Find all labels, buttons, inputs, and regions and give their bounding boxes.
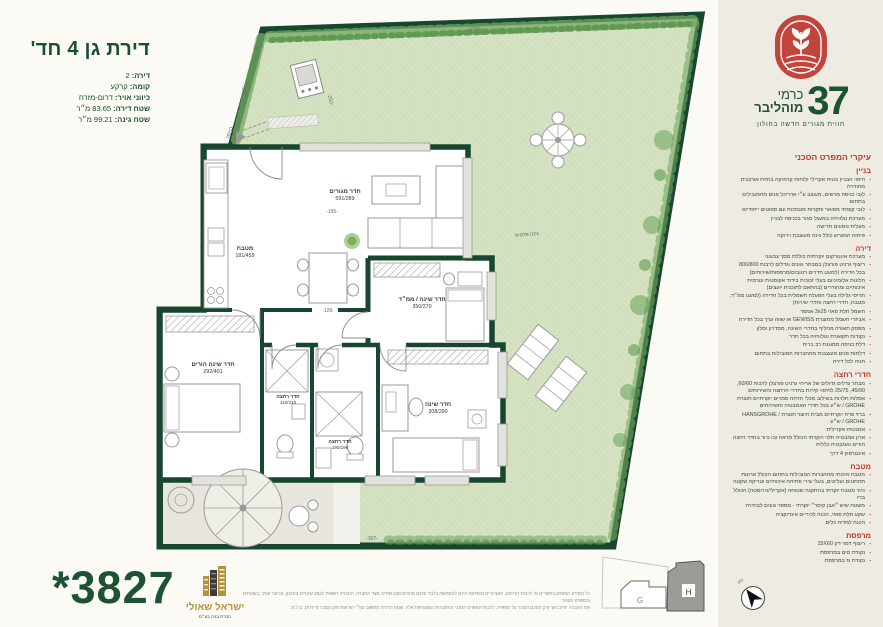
plant-icon: [344, 233, 360, 249]
svg-text:חדר שינה: חדר שינה: [425, 402, 451, 408]
spec-item: ארון אמבטיה תלוי ויוקרתי הכולל מראה ובו …: [729, 435, 871, 449]
deck-table: [289, 506, 309, 526]
svg-text:-307-: -307-: [366, 536, 378, 542]
svg-text:חדר רחצה: חדר רחצה: [328, 439, 352, 445]
spec-item: פיתוח המגרש כולל גינה מעוצבת וירוקה: [729, 233, 871, 240]
entry-walkway: [268, 114, 319, 128]
spec-item: דלתות פנים מעוצבות מהחברות המובילות בתחו…: [729, 351, 871, 358]
svg-text:-1101-: -1101-: [468, 26, 483, 32]
building-h: [667, 561, 704, 611]
svg-text:מטבח: מטבח: [237, 246, 254, 252]
deck-umbrella: [204, 469, 282, 547]
spec-item: חיפוי הבניין בטיח אקרילי ולוחות קרמיקה ב…: [729, 177, 871, 191]
title-block: דירת גן 4 חד' דירה: 2 קומה: קרקע כיווני …: [18, 38, 150, 125]
detail-apartment-area: שטח דירה: 83.65 מ״ר: [18, 103, 150, 114]
spec-item: אסלות תלויות בשילוב מכלי הדחה סמויים יוק…: [729, 396, 871, 410]
spec-item: אביזרי חשמל מתוצרת GEWISS או שווה ערך בכ…: [729, 317, 871, 324]
svg-text:-250-: -250-: [326, 93, 334, 106]
disclaimer-line-1: כל המידע המופיע בתשריט זה לרבות הריהוט, …: [238, 591, 590, 605]
dimension-labels: -1101- -517- -250- -195- -128- -307-: [239, 26, 482, 542]
room-labels: חדר מגורים 591/289 מטבח 181/459 חדר שינה…: [191, 126, 538, 450]
spec-item: ריצוף דמוי דק 15X60: [729, 541, 871, 548]
spec-list: עיקרי המפרט הטכני בניין חיפוי הבניין בטי…: [729, 152, 871, 567]
bbq-grill: [290, 59, 323, 98]
spec-item: ריצוף גרניט פורצלן במבחר גוונים וגדלים ל…: [729, 262, 871, 276]
spec-item: אינטרפוץ 4 דרך: [729, 451, 871, 458]
deck-pergola: [163, 469, 360, 547]
spec-section-bathrooms: חדרי רחצה: [729, 370, 871, 379]
spec-item: משטח שיש ״אבן קיסר״ יוקרתי - מספר גוונים…: [729, 503, 871, 510]
spec-item: נקודת מים במרפסת: [729, 550, 871, 557]
phone-number: *3827: [52, 562, 175, 614]
project-number: 37: [807, 84, 848, 118]
svg-text:350/270: 350/270: [412, 304, 431, 310]
building-g-label: G: [637, 596, 643, 605]
page-title: דירת גן 4 חד': [18, 38, 150, 61]
spec-item: לובי קומתי מפואר ותקרות מונמכות עם ספוטי…: [729, 207, 871, 214]
entrance-arrow-icon: [236, 131, 246, 143]
spec-item: ברזי פרח יוקרתיים מבית היוצר תוצרת HANSG…: [729, 412, 871, 426]
spec-item: אמבטיה אקרילית: [729, 427, 871, 434]
spec-item: מערכת טלוויזיה במעגל סגור בכניסה לבניין: [729, 216, 871, 223]
spec-item: לובי כניסה מרשים, מעוצב ע״י אדריכל פנים …: [729, 192, 871, 206]
svg-text:-128-: -128-: [322, 308, 334, 314]
windows: [192, 143, 507, 485]
spec-heading: עיקרי המפרט הטכני: [729, 152, 871, 162]
svg-text:591/289: 591/289: [335, 196, 354, 202]
spec-item: מערכת אינטרקום יוקרתית כוללת מסך צבעוני: [729, 254, 871, 261]
svg-text:-517-: -517-: [239, 85, 248, 98]
furniture: [164, 160, 488, 472]
spec-item: שקע תלת פאזי, הכנה לכיריים אינדוקציה: [729, 512, 871, 519]
spec-item: מטבח איכותי מהחברות המובילות בתחום הכולל…: [729, 472, 871, 486]
spec-item: מבחר גדלים גדולים של אריחי גרניט פורצלן …: [729, 381, 871, 395]
building-icon: [197, 566, 233, 596]
deck-tree: [168, 487, 194, 513]
disclaimer-line-2: את החברה יחייבו אך ורק הסכם המכר על נספח…: [238, 605, 590, 612]
spec-item: חשמל תלת פאזי 3x25 אמפר: [729, 309, 871, 316]
spec-item: חניה לכל דירה: [729, 359, 871, 366]
spec-items-balcony: ריצוף דמוי דק 15X60 נקודת מים במרפסת נקו…: [729, 541, 871, 565]
spec-item: נקודת גז במרפסת: [729, 558, 871, 565]
svg-text:190/190: 190/190: [332, 445, 349, 450]
spec-item: מפסק תאורה מחליף בחדרי השינה, מסדרון וסל…: [729, 326, 871, 333]
spec-items-bathrooms: מבחר גדלים גדולים של אריחי גרניט פורצלן …: [729, 381, 871, 458]
spec-items-apartment: מערכת אינטרקום יוקרתית כוללת מסך צבעוני …: [729, 254, 871, 366]
detail-apartment: דירה: 2: [18, 70, 150, 81]
spec-section-kitchen: מטבח: [729, 462, 871, 471]
apartment: [160, 147, 503, 480]
doors: [232, 122, 406, 371]
svg-text:-195-: -195-: [326, 209, 338, 215]
garden-table-set: [530, 112, 586, 168]
spec-item: תריסי גלילה בעלי הפעלה חשמלית בכל הדירה …: [729, 293, 871, 307]
entrance-label: כניסה: [225, 126, 235, 140]
spec-item: מעלית נוסעים חדישה: [729, 224, 871, 231]
svg-text:110/210: 110/210: [280, 400, 297, 405]
project-logo: 37 כרמי מוהליבר חווית מגורים חדשה בחולון: [741, 14, 861, 128]
svg-text:חדר שינה הורים: חדר שינה הורים: [191, 362, 234, 368]
building-g: [621, 581, 666, 608]
garden-trees: [613, 130, 674, 447]
legal-disclaimer: כל המידע המופיע בתשריט זה לרבות הריהוט, …: [238, 591, 590, 612]
svg-text:חדר שינה / ממ״ד: חדר שינה / ממ״ד: [398, 296, 445, 303]
spec-items-building: חיפוי הבניין בטיח אקרילי ולוחות קרמיקה ב…: [729, 177, 871, 240]
garden-plot: [160, 15, 701, 546]
detail-garden-area: שטח גינה: 99.21 מ״ר: [18, 114, 150, 125]
spec-item: הכנה למדיח כלים: [729, 520, 871, 527]
detail-directions: כיווני אויר: דרום-מזרח: [18, 92, 150, 103]
dining-table: [309, 253, 347, 303]
lounge-chairs: [507, 324, 586, 411]
svg-text:חדר רחצה: חדר רחצה: [276, 394, 300, 400]
garden-label: גינה פרטית: [515, 231, 539, 239]
spec-section-apartment: דירה: [729, 244, 871, 253]
detail-floor: קומה: קרקע: [18, 81, 150, 92]
svg-text:181/459: 181/459: [235, 253, 254, 259]
svg-text:308/290: 308/290: [428, 409, 447, 415]
emblem-icon: [774, 14, 828, 80]
spec-section-balcony: מרפסת: [729, 531, 871, 540]
project-word2: מוהליבר: [754, 101, 803, 114]
project-word1: כרמי: [754, 88, 803, 101]
project-tagline: חווית מגורים חדשה בחולון: [741, 121, 861, 128]
spec-item: חלונות אלומיניום בעלי זכוכית בידוד אקוסט…: [729, 278, 871, 292]
svg-text:חדר מגורים: חדר מגורים: [329, 189, 360, 195]
hedge-texture: [236, 21, 695, 542]
developer-tagline: חברת בניה בע״מ: [178, 614, 252, 619]
site-key-plan: H G: [602, 557, 704, 611]
spec-item: דלת כניסה ממוגנת רב בריח: [729, 342, 871, 349]
spec-item: נקודות תקשורת וטלוויזיה בכל חדר: [729, 334, 871, 341]
spec-items-kitchen: מטבח איכותי מהחברות המובילות בתחום הכולל…: [729, 472, 871, 527]
svg-text:292/401: 292/401: [203, 369, 222, 375]
spec-section-building: בניין: [729, 166, 871, 175]
spec-item: כיור מטבח יוקרתי בהתקנה שטוחה (אקרילי/ני…: [729, 488, 871, 502]
building-h-label: H: [686, 588, 692, 597]
